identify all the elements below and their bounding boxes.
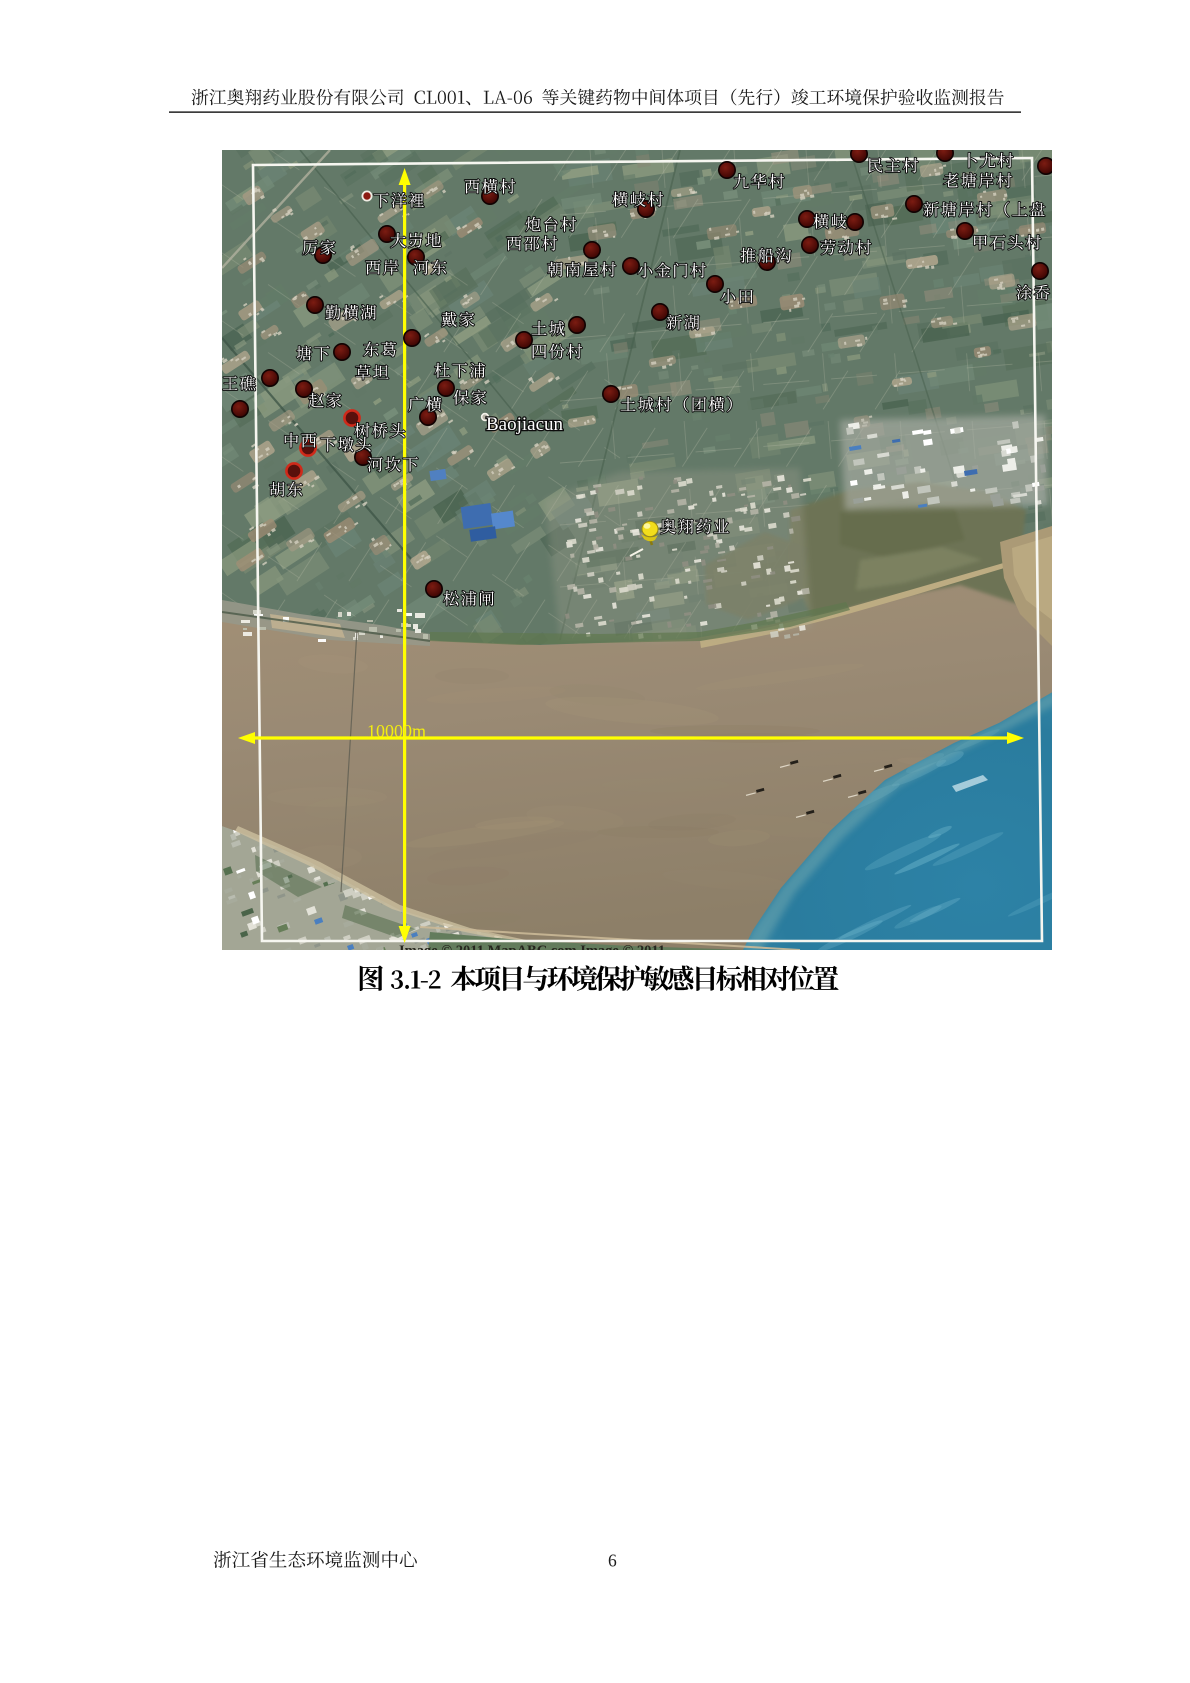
svg-text:Baojiacun: Baojiacun [486,414,564,435]
svg-text:10000m: 10000m [367,721,426,741]
svg-text:Image © 2011 MapABC.com Imag: Image © 2011 MapABC.com Image © 2011 [399,943,665,959]
svg-text:6: 6 [608,1551,617,1571]
